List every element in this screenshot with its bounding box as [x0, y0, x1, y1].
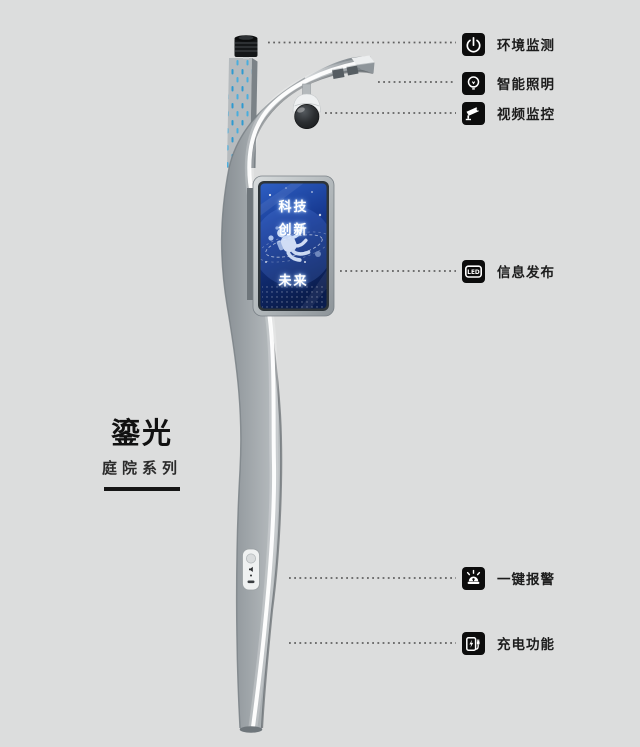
cctv-camera-icon: [462, 102, 485, 125]
feature-video: 视频监控: [462, 101, 555, 125]
light-bulb-icon: [462, 72, 485, 95]
feature-charging: 充电功能: [462, 631, 555, 655]
environment-monitor-icon: [462, 33, 485, 56]
brand-block: 鎏光 庭院系列: [95, 418, 189, 491]
feature-label: 智能照明: [497, 73, 555, 93]
poster: 科技 创新 未来 环境监测 智能照明: [0, 0, 640, 747]
brand-name: 鎏光: [95, 418, 189, 450]
feature-alarm: 一键报警: [462, 566, 555, 590]
alarm-panel: [243, 549, 260, 590]
feature-label: 信息发布: [497, 261, 555, 281]
feature-label: 一键报警: [497, 568, 555, 588]
pole-body: [222, 56, 374, 729]
brand-series: 庭院系列: [95, 457, 189, 478]
brand-underline: [104, 487, 180, 491]
feature-environment: 环境监测: [462, 32, 555, 56]
feature-label: 充电功能: [497, 633, 555, 653]
led-icon-text: LED: [467, 270, 480, 276]
pole-base: [240, 726, 263, 732]
leader-lines: [268, 43, 456, 644]
display-screen: [247, 176, 334, 316]
charging-icon: [462, 632, 485, 655]
feature-lighting: 智能照明: [462, 71, 555, 95]
feature-label: 视频监控: [497, 103, 555, 123]
environment-sensor: [235, 35, 258, 59]
led-screen-icon: LED: [462, 260, 485, 283]
feature-information: LED 信息发布: [462, 259, 555, 283]
alarm-siren-icon: [462, 567, 485, 590]
feature-label: 环境监测: [497, 34, 555, 54]
